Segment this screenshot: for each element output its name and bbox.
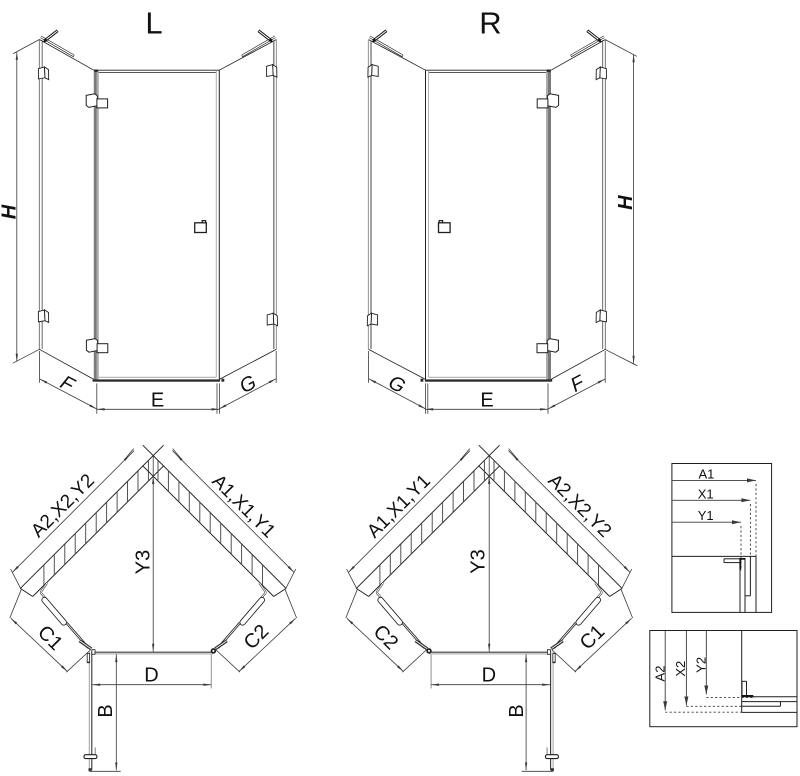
svg-text:L: L — [145, 6, 162, 41]
svg-text:Y3: Y3 — [468, 549, 490, 573]
svg-text:Y3: Y3 — [133, 550, 155, 574]
svg-text:H: H — [0, 204, 21, 219]
svg-text:X2: X2 — [673, 661, 688, 677]
svg-text:X1: X1 — [698, 486, 714, 501]
svg-text:Y1: Y1 — [698, 508, 714, 523]
svg-text:Y2: Y2 — [694, 657, 709, 673]
svg-text:A1: A1 — [698, 466, 714, 481]
svg-text:A2: A2 — [653, 666, 668, 682]
svg-text:D: D — [482, 665, 496, 687]
svg-text:E: E — [151, 390, 164, 412]
svg-text:R: R — [479, 6, 501, 41]
svg-text:D: D — [144, 665, 158, 687]
svg-text:B: B — [506, 704, 528, 717]
svg-text:B: B — [95, 704, 117, 717]
svg-text:E: E — [480, 390, 493, 412]
